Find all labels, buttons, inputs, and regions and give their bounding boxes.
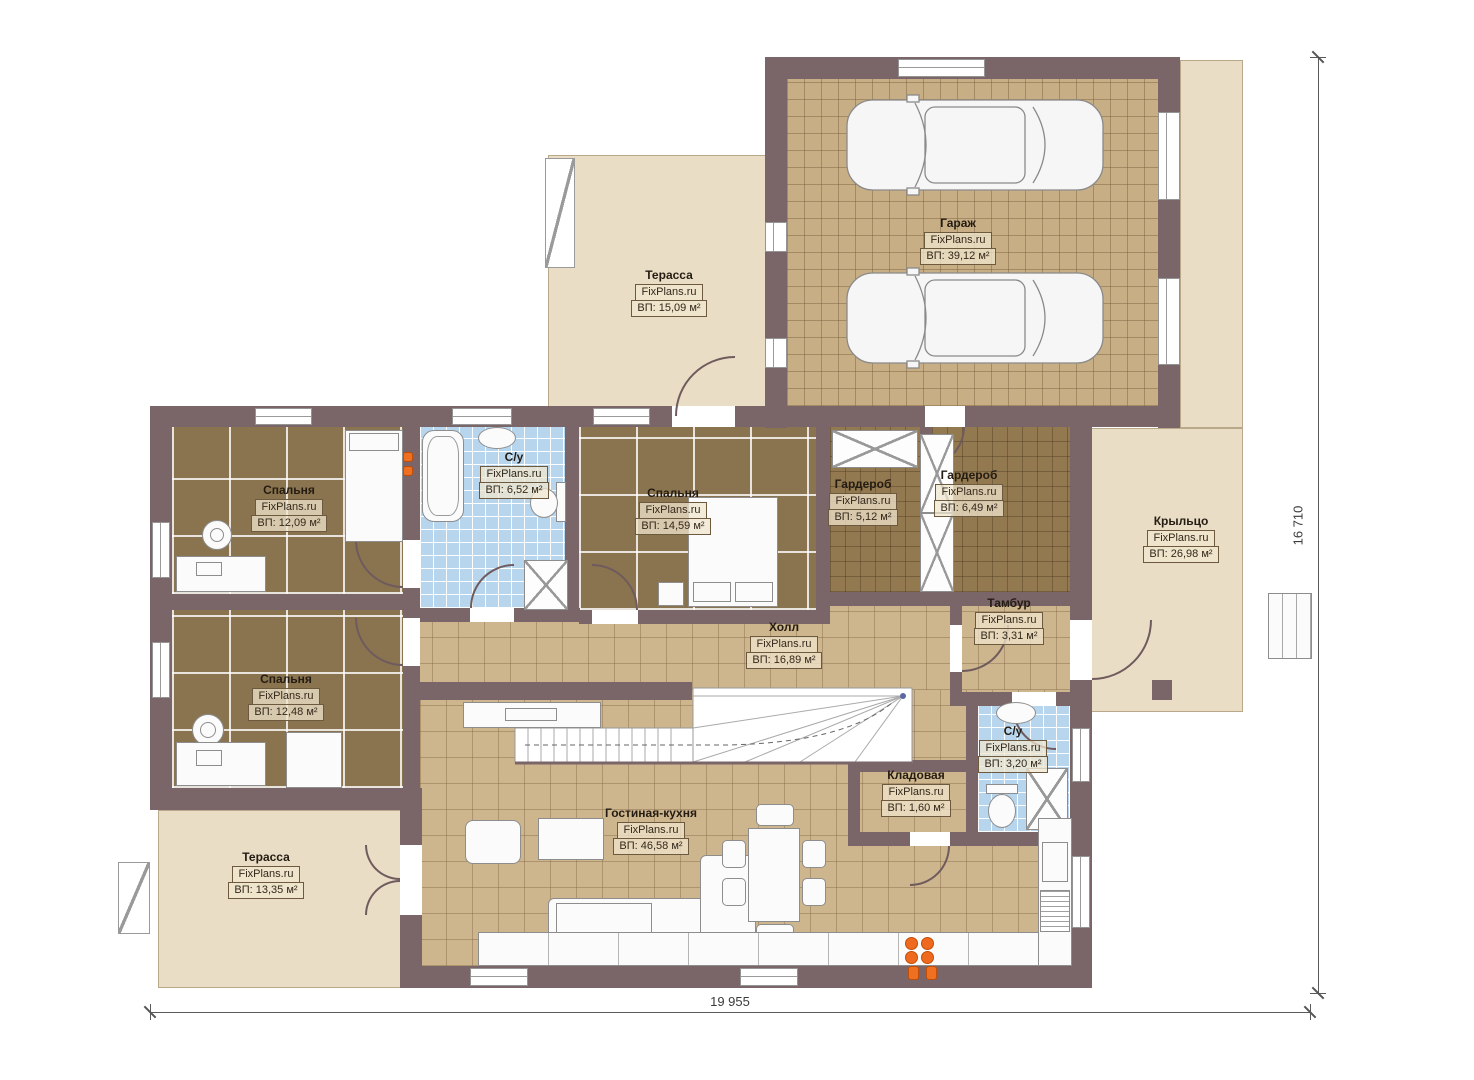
room-name: С/у: [947, 724, 1079, 738]
room-label-bedroom-2: Спальня FixPlans.ru ВП: 14,59 м²: [607, 486, 739, 535]
toilet-tank-icon: [986, 784, 1018, 794]
plant-icon: [200, 722, 216, 738]
watermark: FixPlans.ru: [639, 502, 706, 519]
room-area: ВП: 12,48 м²: [248, 704, 323, 721]
dimension-line-vertical: [1318, 57, 1319, 993]
room-name: Терасса: [200, 850, 332, 864]
chair-icon: [802, 878, 826, 906]
room-area: ВП: 6,49 м²: [934, 500, 1003, 517]
room-label-living-kitchen: Гостиная-кухня FixPlans.ru ВП: 46,58 м²: [585, 806, 717, 855]
room-label-bedroom-3: Спальня FixPlans.ru ВП: 12,48 м²: [220, 672, 352, 721]
stove-knob-icon: [908, 966, 919, 980]
watermark: FixPlans.ru: [480, 466, 547, 483]
room-area: ВП: 1,60 м²: [881, 800, 950, 817]
room-area: ВП: 5,12 м²: [828, 509, 897, 526]
toilet-icon: [988, 794, 1016, 828]
dimension-label-height: 16 710: [1291, 486, 1306, 566]
valve-icon: [403, 452, 413, 462]
stove-burner-icon: [921, 951, 934, 964]
shower-icon: [524, 560, 568, 610]
chair-icon: [722, 840, 746, 868]
watermark: FixPlans.ru: [617, 822, 684, 839]
room-area: ВП: 6,52 м²: [479, 482, 548, 499]
window: [765, 338, 787, 368]
chair-icon: [722, 878, 746, 906]
valve-icon: [403, 466, 413, 476]
desk-item: [196, 750, 222, 766]
room-label-storage: Кладовая FixPlans.ru ВП: 1,60 м²: [850, 768, 982, 817]
sink-icon: [996, 702, 1036, 724]
room-name: С/у: [448, 450, 580, 464]
room-area: ВП: 39,12 м²: [920, 248, 995, 265]
room-name: Гараж: [892, 216, 1024, 230]
watermark: FixPlans.ru: [1147, 530, 1214, 547]
room-name: Гостиная-кухня: [585, 806, 717, 820]
room-label-hall: Холл FixPlans.ru ВП: 16,89 м²: [718, 620, 850, 669]
watermark: FixPlans.ru: [635, 284, 702, 301]
room-area: ВП: 3,20 м²: [978, 756, 1047, 773]
stove-knob-icon: [926, 966, 937, 980]
watermark: FixPlans.ru: [979, 740, 1046, 757]
stove-burner-icon: [905, 937, 918, 950]
room-area: ВП: 3,31 м²: [974, 628, 1043, 645]
room-label-bedroom-1: Спальня FixPlans.ru ВП: 12,09 м²: [223, 483, 355, 532]
pillow-icon: [693, 582, 731, 602]
room-name: Спальня: [223, 483, 355, 497]
watermark: FixPlans.ru: [924, 232, 991, 249]
stove-burner-icon: [905, 951, 918, 964]
watermark: FixPlans.ru: [255, 499, 322, 516]
room-label-bathroom-1: С/у FixPlans.ru ВП: 6,52 м²: [448, 450, 580, 499]
window: [1072, 856, 1090, 928]
kitchen-sink-icon: [1042, 842, 1068, 882]
chair-icon: [802, 840, 826, 868]
stove-burner-icon: [921, 937, 934, 950]
porch-pillar: [1152, 680, 1172, 700]
door-opening: [403, 618, 420, 666]
room-area: ВП: 15,09 м²: [631, 300, 706, 317]
nightstand-icon: [658, 582, 684, 606]
wall: [172, 594, 403, 610]
door-opening: [470, 608, 514, 622]
door-opening: [403, 540, 420, 588]
terrace-rail: [545, 158, 575, 268]
watermark: FixPlans.ru: [935, 484, 1002, 501]
room-area: ВП: 26,98 м²: [1143, 546, 1218, 563]
room-name: Спальня: [607, 486, 739, 500]
sink-icon: [478, 427, 516, 449]
room-label-bathroom-2: С/у FixPlans.ru ВП: 3,20 м²: [947, 724, 1079, 773]
dining-table-icon: [748, 828, 800, 922]
watermark: FixPlans.ru: [252, 688, 319, 705]
chair-icon: [756, 804, 794, 826]
floor-plan: Гараж FixPlans.ru ВП: 39,12 м² Терасса F…: [0, 0, 1474, 1080]
room-label-tambour: Тамбур FixPlans.ru ВП: 3,31 м²: [943, 596, 1075, 645]
watermark: FixPlans.ru: [829, 493, 896, 510]
room-name: Тамбур: [943, 596, 1075, 610]
pillow-icon: [349, 433, 399, 451]
wall: [403, 427, 420, 792]
door-opening: [925, 406, 965, 427]
window: [470, 968, 528, 986]
window: [152, 642, 170, 698]
room-name: Крыльцо: [1115, 514, 1247, 528]
room-name: Спальня: [220, 672, 352, 686]
garage-door: [1158, 278, 1180, 365]
garage-door: [1158, 112, 1180, 200]
porch-step: [1268, 593, 1312, 659]
door-opening: [592, 610, 638, 624]
room-area: ВП: 46,58 м²: [613, 838, 688, 855]
window: [740, 968, 798, 986]
window: [152, 522, 170, 578]
terrace-rail: [118, 862, 150, 934]
window: [452, 408, 512, 425]
window: [898, 59, 985, 77]
dimension-line-horizontal: [150, 1012, 1310, 1013]
window: [765, 222, 787, 252]
wall: [150, 788, 422, 810]
room-label-terrace-top: Терасса FixPlans.ru ВП: 15,09 м²: [603, 268, 735, 317]
room-area: ВП: 12,09 м²: [251, 515, 326, 532]
room-area: ВП: 14,59 м²: [635, 518, 710, 535]
kitchen-counter-icon: [478, 932, 1040, 966]
watermark: FixPlans.ru: [750, 636, 817, 653]
room-name: Терасса: [603, 268, 735, 282]
room-floor-porch-strip: [1180, 60, 1243, 428]
wardrobe-icon: [832, 430, 918, 468]
room-label-terrace-bottom: Терасса FixPlans.ru ВП: 13,35 м²: [200, 850, 332, 899]
room-name: Кладовая: [850, 768, 982, 782]
dishwasher-icon: [1040, 890, 1070, 932]
wall: [150, 406, 172, 810]
room-label-wardrobe-2: Гардероб FixPlans.ru ВП: 6,49 м²: [903, 468, 1035, 517]
room-label-porch: Крыльцо FixPlans.ru ВП: 26,98 м²: [1115, 514, 1247, 563]
plant-icon: [210, 528, 224, 542]
room-name: Холл: [718, 620, 850, 634]
desk-item: [196, 562, 222, 576]
console-decor: [505, 708, 557, 721]
wardrobe-icon: [286, 732, 342, 788]
room-name: Гардероб: [903, 468, 1035, 482]
door-opening: [400, 845, 422, 915]
room-area: ВП: 16,89 м²: [746, 652, 821, 669]
watermark: FixPlans.ru: [975, 612, 1042, 629]
dimension-label-width: 19 955: [650, 994, 810, 1009]
pillow-icon: [735, 582, 773, 602]
room-label-garage: Гараж FixPlans.ru ВП: 39,12 м²: [892, 216, 1024, 265]
wall: [848, 832, 1070, 846]
watermark: FixPlans.ru: [232, 866, 299, 883]
watermark: FixPlans.ru: [882, 784, 949, 801]
window: [255, 408, 312, 425]
armchair-icon: [465, 820, 521, 864]
room-area: ВП: 13,35 м²: [228, 882, 303, 899]
door-opening: [910, 832, 950, 846]
window: [593, 408, 650, 425]
